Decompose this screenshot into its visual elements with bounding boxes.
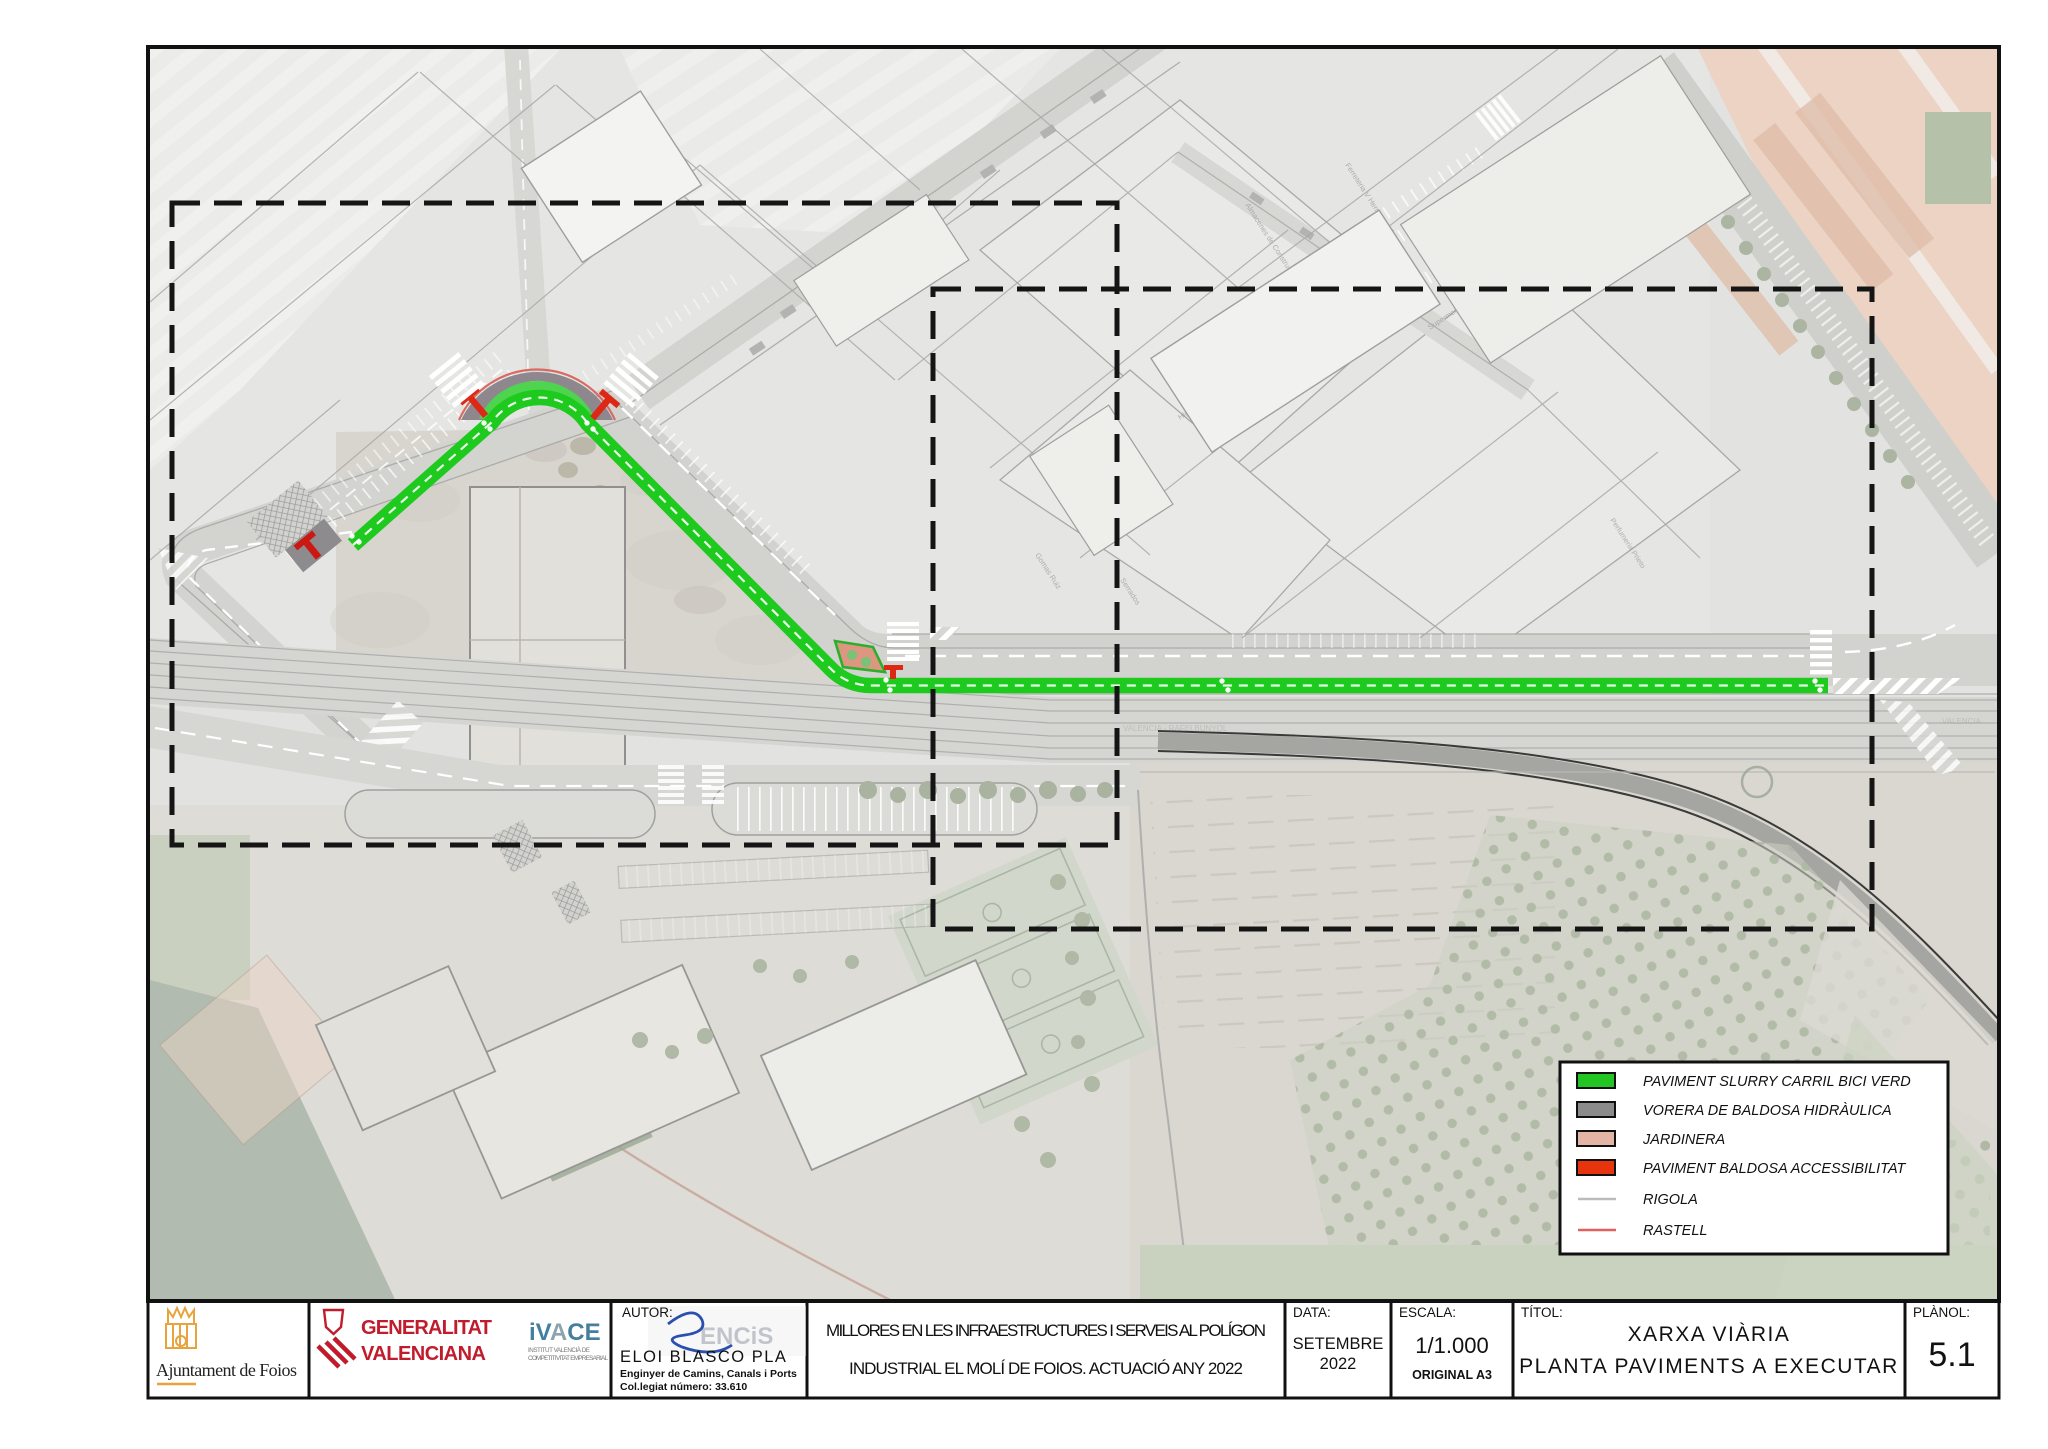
svg-text:INDUSTRIAL EL MOLÍ DE FOIOS. A: INDUSTRIAL EL MOLÍ DE FOIOS. ACTUACIÓ AN… (849, 1359, 1243, 1378)
svg-text:ESCALA:: ESCALA: (1399, 1305, 1456, 1320)
svg-text:ORIGINAL A3: ORIGINAL A3 (1412, 1368, 1492, 1382)
svg-text:2022: 2022 (1320, 1355, 1357, 1373)
svg-text:Ajuntament de Foios: Ajuntament de Foios (156, 1360, 297, 1380)
svg-text:TÍTOL:: TÍTOL: (1521, 1305, 1563, 1320)
svg-text:VALENCIA: VALENCIA (1942, 717, 1982, 726)
svg-text:PAVIMENT SLURRY CARRIL BICI VE: PAVIMENT SLURRY CARRIL BICI VERD (1643, 1074, 1911, 1090)
svg-text:Enginyer de Camins, Canals i P: Enginyer de Camins, Canals i Ports (620, 1368, 797, 1380)
svg-text:PLANTA PAVIMENTS A EXECUTAR: PLANTA PAVIMENTS A EXECUTAR (1519, 1355, 1899, 1378)
svg-text:iVACE: iVACE (529, 1319, 601, 1346)
svg-text:INSTITUT VALENCIÀ DE: INSTITUT VALENCIÀ DE (528, 1345, 590, 1354)
svg-text:5.1: 5.1 (1928, 1336, 1975, 1374)
svg-text:JARDINERA: JARDINERA (1642, 1132, 1725, 1148)
svg-text:VALENCIANA: VALENCIANA (361, 1343, 486, 1365)
svg-text:RIGOLA: RIGOLA (1643, 1192, 1698, 1208)
svg-text:VORERA DE BALDOSA HIDRÀULICA: VORERA DE BALDOSA HIDRÀULICA (1643, 1102, 1892, 1119)
svg-text:MILLORES EN LES INFRAESTRUCTUR: MILLORES EN LES INFRAESTRUCTURES I SERVE… (826, 1321, 1266, 1340)
svg-text:Col.legiat número: 33.610: Col.legiat número: 33.610 (620, 1381, 747, 1393)
svg-text:RASTELL: RASTELL (1643, 1223, 1707, 1239)
svg-text:1/1.000: 1/1.000 (1415, 1333, 1488, 1358)
svg-text:DATA:: DATA: (1293, 1305, 1331, 1320)
svg-text:GENERALITAT: GENERALITAT (361, 1317, 492, 1339)
svg-text:SETEMBRE: SETEMBRE (1293, 1335, 1384, 1353)
svg-text:ENCiS: ENCiS (700, 1323, 773, 1350)
svg-text:COMPETITIVITAT EMPRESARIAL: COMPETITIVITAT EMPRESARIAL (528, 1355, 608, 1362)
svg-text:AUTOR:: AUTOR: (622, 1305, 673, 1320)
svg-text:XARXA VIÀRIA: XARXA VIÀRIA (1628, 1323, 1791, 1346)
svg-text:PLÀNOL:: PLÀNOL: (1913, 1305, 1970, 1320)
svg-text:PAVIMENT BALDOSA ACCESSIBILITA: PAVIMENT BALDOSA ACCESSIBILITAT (1643, 1161, 1907, 1177)
svg-text:ELOI BLASCO PLA: ELOI BLASCO PLA (620, 1348, 787, 1366)
